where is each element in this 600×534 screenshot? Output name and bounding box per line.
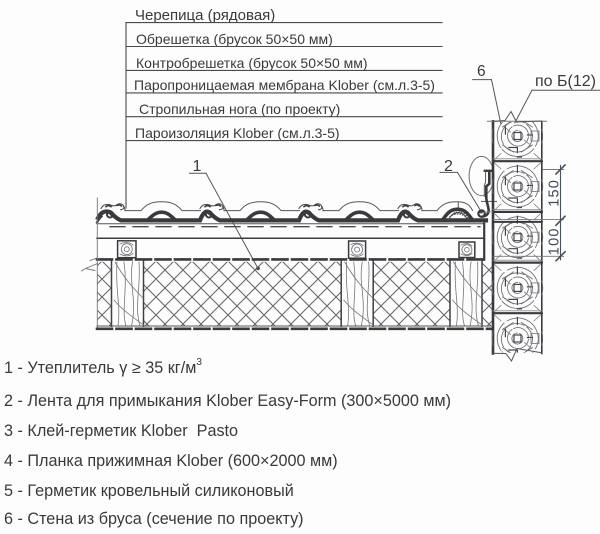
svg-text:100: 100 [547, 227, 563, 255]
svg-text:150: 150 [547, 179, 563, 207]
